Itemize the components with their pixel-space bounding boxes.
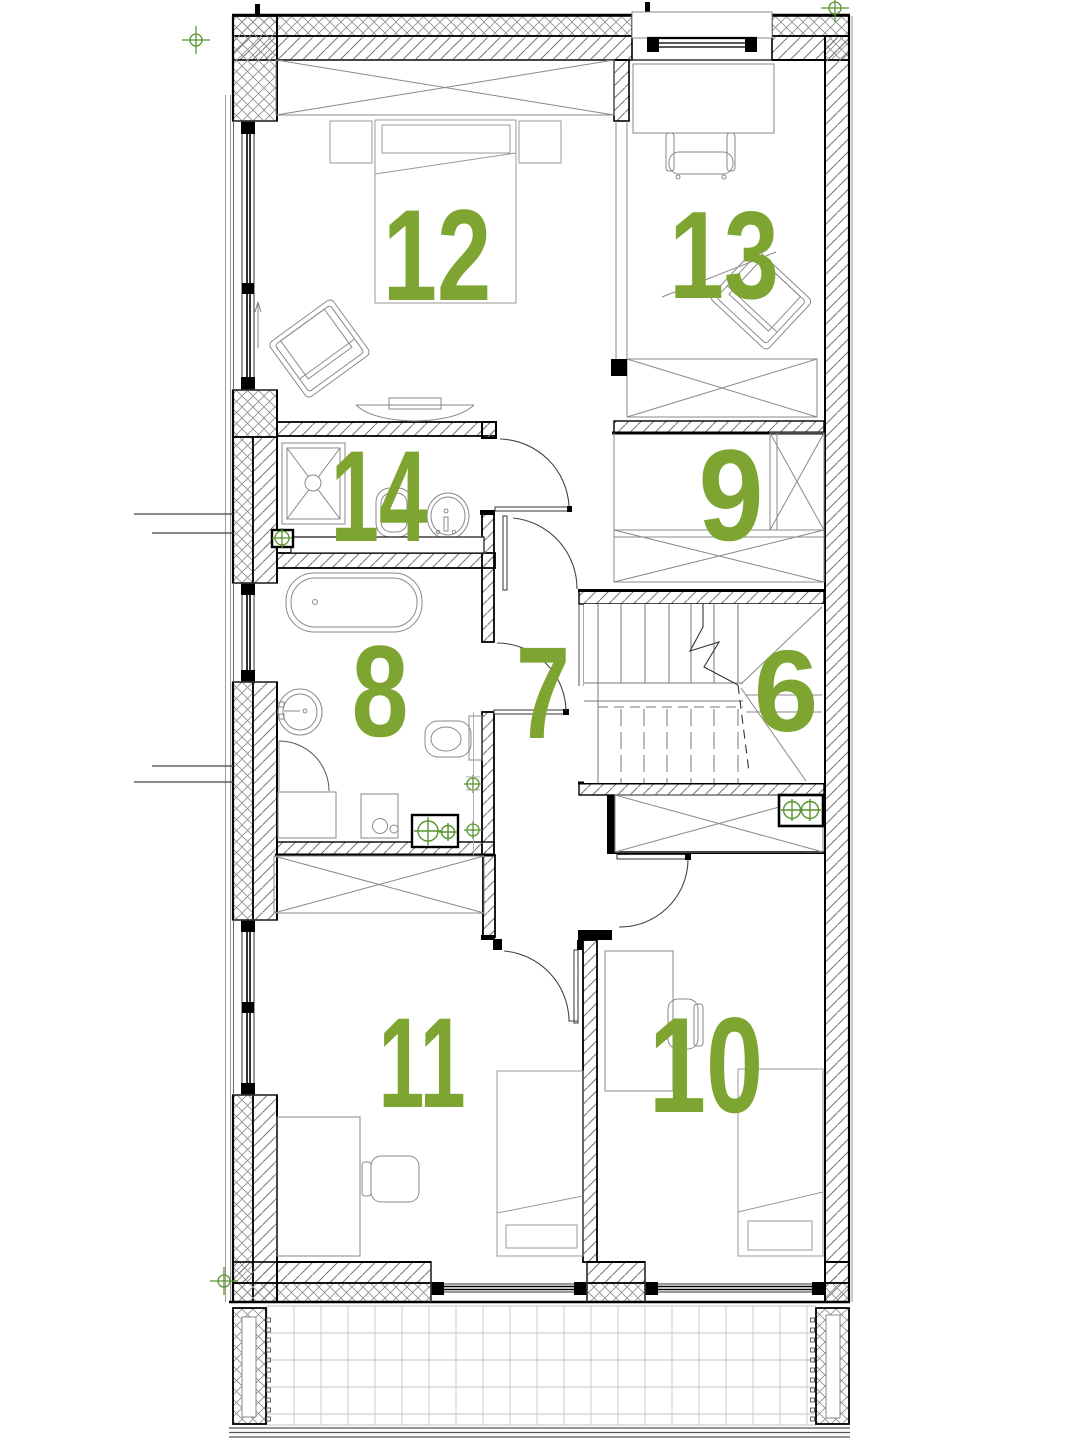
svg-text:12: 12 bbox=[383, 183, 491, 328]
svg-text:14: 14 bbox=[331, 425, 428, 570]
svg-text:10: 10 bbox=[649, 989, 763, 1141]
svg-text:7: 7 bbox=[516, 621, 570, 767]
svg-text:8: 8 bbox=[352, 618, 409, 764]
svg-text:6: 6 bbox=[754, 626, 819, 756]
svg-text:13: 13 bbox=[669, 186, 779, 324]
svg-text:9: 9 bbox=[698, 423, 763, 568]
svg-text:11: 11 bbox=[378, 992, 465, 1135]
